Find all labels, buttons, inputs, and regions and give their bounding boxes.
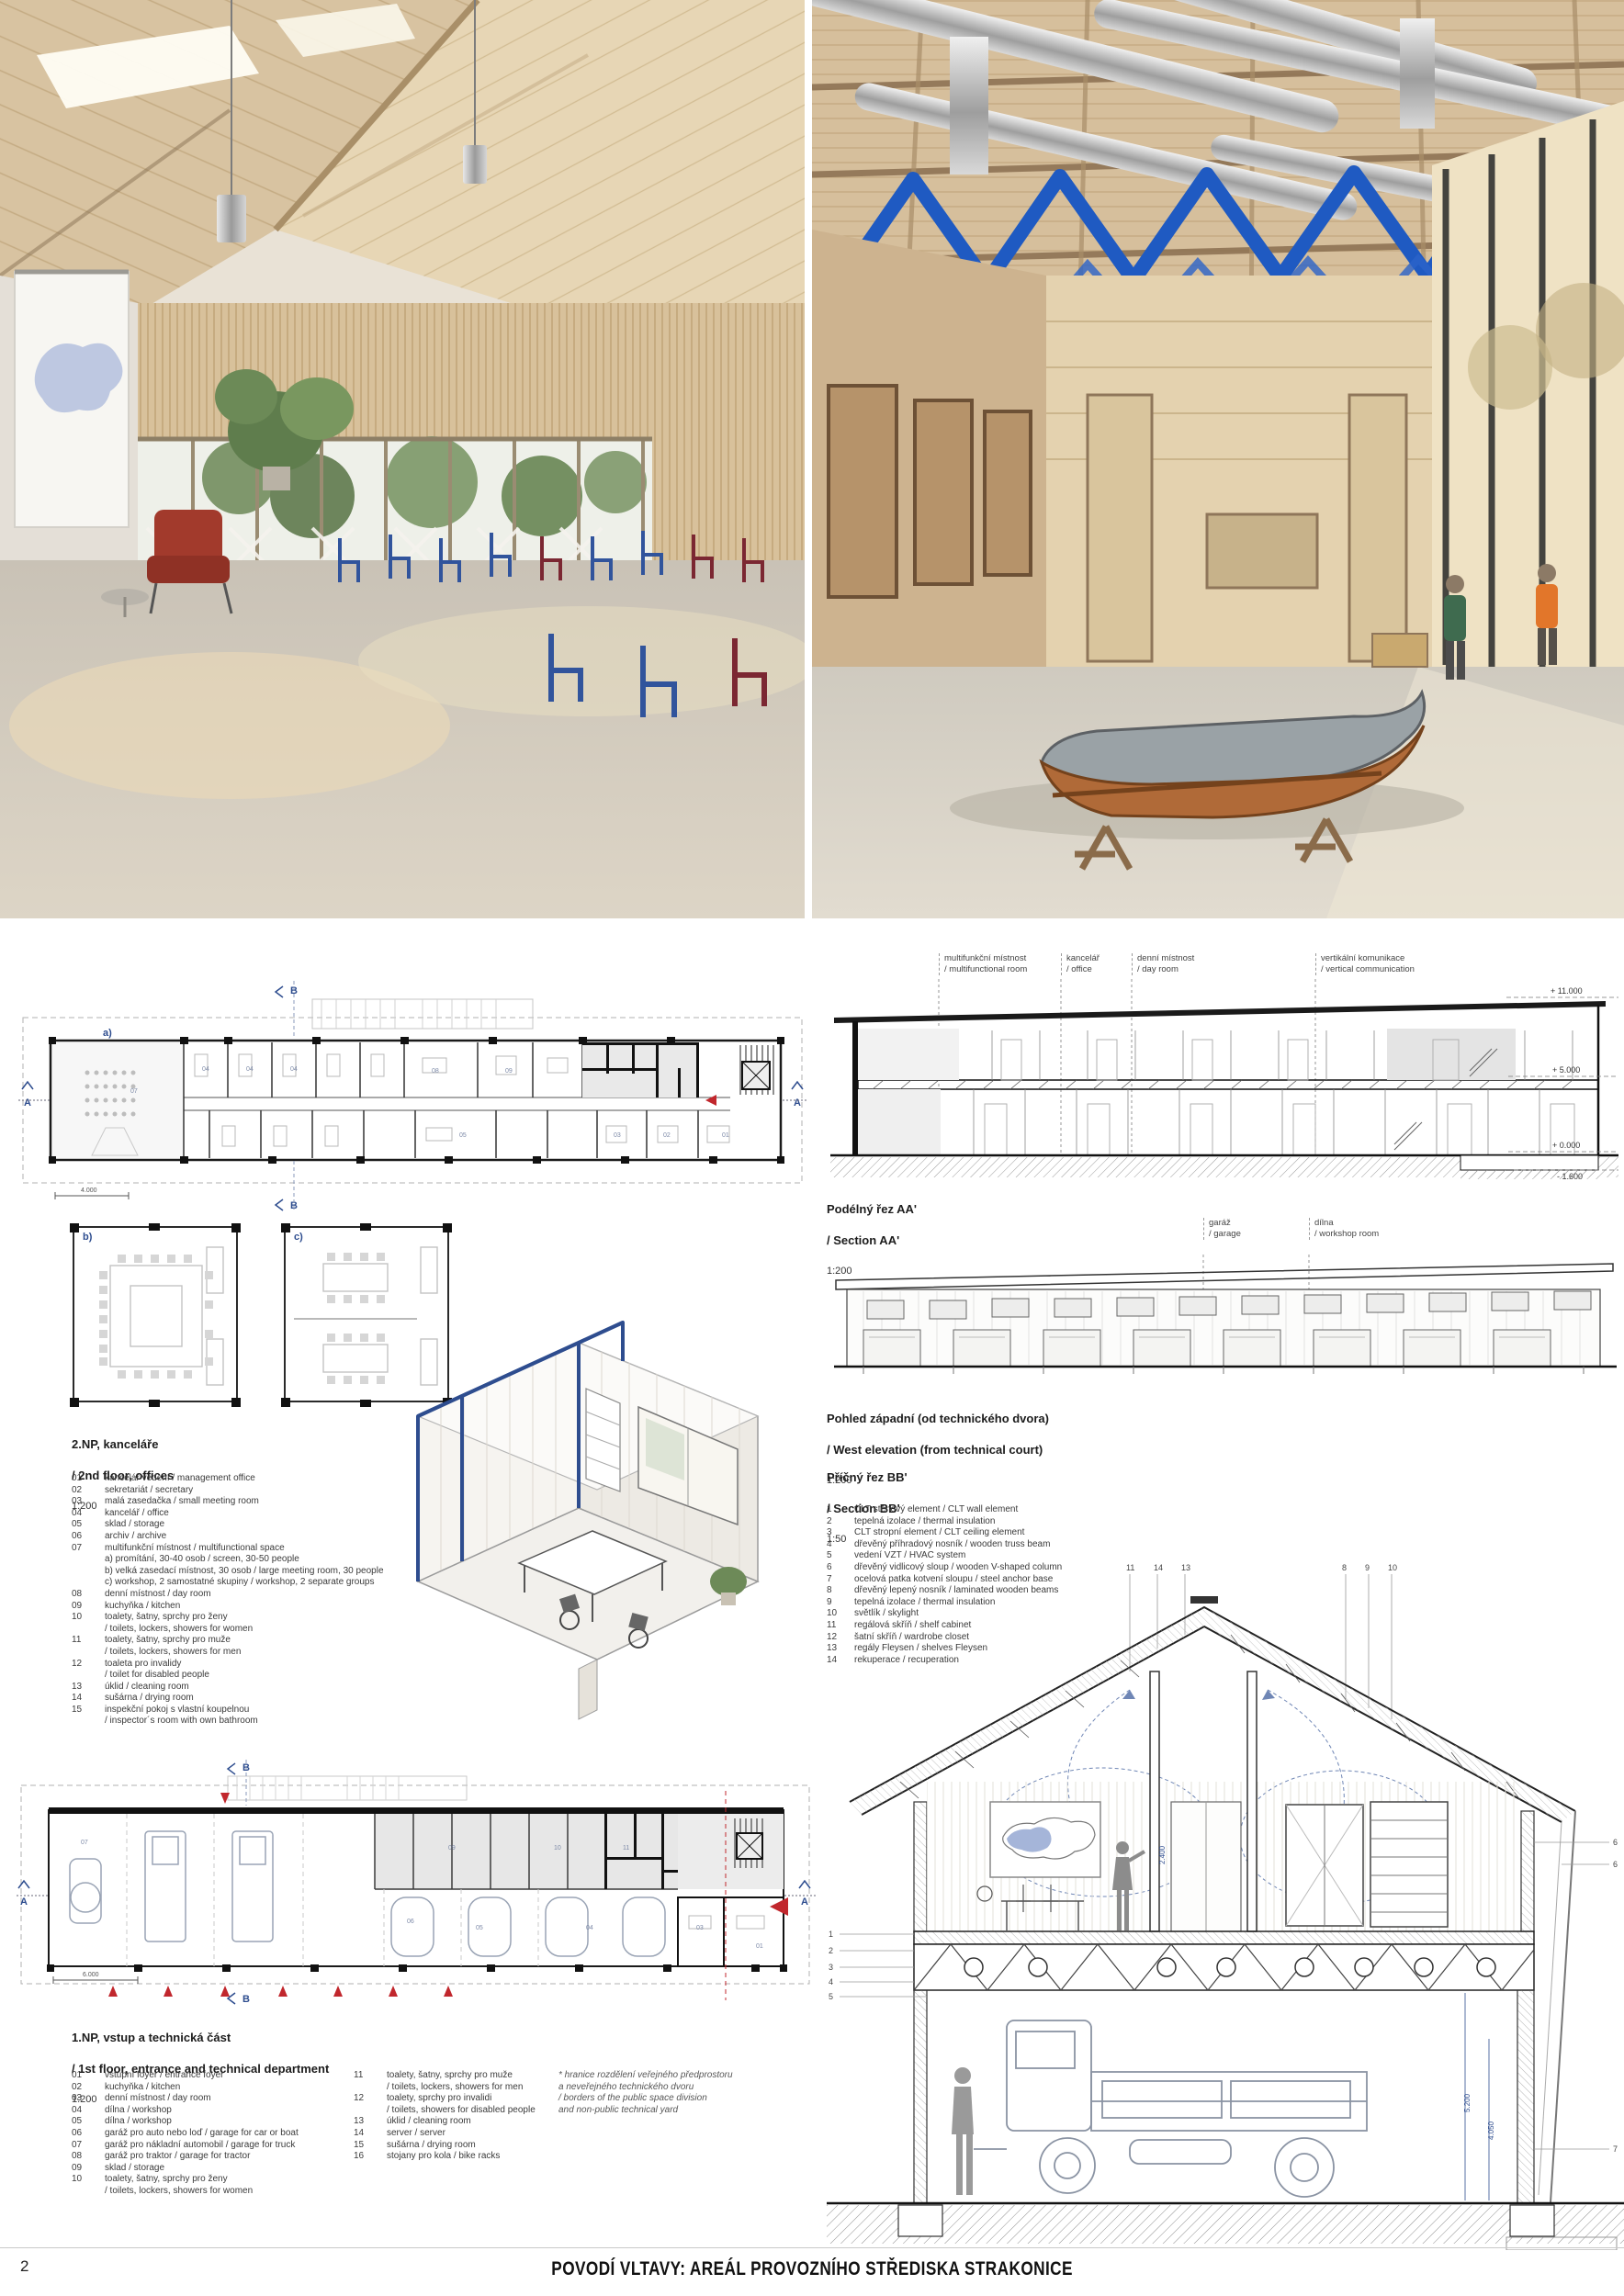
board-title: POVODÍ VLTAVY: AREÁL PROVOZNÍHO STŘEDISK…: [0, 2258, 1624, 2280]
legend-row: 06garáž pro auto nebo loď / garage for c…: [72, 2128, 347, 2140]
svg-text:1: 1: [829, 1930, 833, 1939]
svg-text:03: 03: [614, 1132, 621, 1139]
svg-text:4.000: 4.000: [81, 1187, 97, 1194]
legend-row: 11toalety, šatny, sprchy pro muže: [354, 2070, 565, 2082]
legend-row: / toilet for disabled people: [72, 1670, 467, 1682]
svg-text:4.050: 4.050: [1487, 2121, 1495, 2140]
legend-row: 08garáž pro traktor / garage for tractor: [72, 2151, 347, 2163]
svg-text:6: 6: [1613, 1838, 1618, 1847]
note-line: and non-public technical yard: [558, 2105, 761, 2117]
svg-text:05: 05: [459, 1132, 467, 1139]
legend-row: / toilets, showers for disabled people: [354, 2105, 565, 2117]
svg-text:09: 09: [505, 1068, 513, 1075]
svg-text:7: 7: [1613, 2144, 1618, 2154]
legend-row: 10toalety, šatny, sprchy pro ženy: [72, 2174, 347, 2186]
svg-text:11: 11: [623, 1845, 629, 1851]
svg-text:A: A: [24, 1097, 31, 1109]
legend-row: / toilets, lockers, showers for women: [72, 1624, 467, 1636]
legend-row: / toilets, lockers, showers for men: [354, 2082, 565, 2094]
legend-row: 05sklad / storage: [72, 1519, 467, 1531]
svg-text:+ 11.000: + 11.000: [1551, 986, 1583, 996]
footer-divider: [0, 2247, 1624, 2248]
legend-row: 06archiv / archive: [72, 1531, 467, 1543]
svg-text:A: A: [794, 1097, 801, 1109]
legend-row: 12toalety, sprchy pro invalidi: [354, 2093, 565, 2105]
svg-text:3: 3: [829, 1963, 833, 1972]
legend-row: / toilets, lockers, showers for men: [72, 1647, 467, 1659]
svg-text:09: 09: [448, 1845, 456, 1851]
legend-row: 1CLT stěnový element / CLT wall element: [827, 1504, 1194, 1516]
svg-text:5.200: 5.200: [1463, 2093, 1472, 2112]
door-row: [829, 386, 1031, 597]
svg-text:B: B: [242, 1994, 250, 2005]
legend-1np-col2: 11toalety, šatny, sprchy pro muže/ toile…: [354, 2070, 565, 2163]
svg-text:02: 02: [663, 1132, 671, 1139]
label-day-room: denní místnost/ day room: [1132, 953, 1194, 975]
legend-row: 15inspekční pokoj s vlastní koupelnou: [72, 1705, 467, 1716]
legend-2np: 01kancelář vedení / management office02s…: [72, 1473, 467, 1728]
svg-text:- 1.600: - 1.600: [1557, 1172, 1583, 1181]
svg-text:8: 8: [1342, 1563, 1347, 1572]
svg-text:06: 06: [407, 1919, 414, 1925]
svg-text:6.000: 6.000: [83, 1972, 99, 1978]
floor-plan-2np: a) B B A A 07 04 04 04 08 09 05: [18, 981, 808, 1212]
legend-row: 3CLT stropní element / CLT ceiling eleme…: [827, 1527, 1194, 1539]
svg-text:01: 01: [722, 1132, 729, 1139]
legend-row: 07garáž pro nákladní automobil / garage …: [72, 2140, 347, 2152]
svg-text:01: 01: [756, 1943, 763, 1950]
west-elevation-drawing: [827, 1253, 1624, 1390]
legend-row: 12toaleta pro invalidy: [72, 1659, 467, 1671]
svg-text:9: 9: [1365, 1563, 1370, 1572]
label-office: kancelář/ office: [1061, 953, 1100, 975]
svg-text:14: 14: [1154, 1563, 1163, 1572]
person-ground: [952, 2067, 974, 2195]
legend-row: 15sušárna / drying room: [354, 2140, 565, 2152]
svg-text:4: 4: [829, 1977, 833, 1986]
svg-text:11: 11: [1126, 1563, 1134, 1572]
floor-plan-1np: B B A A 07 09 06 10 11 05 04 03: [17, 1760, 818, 2006]
svg-text:A: A: [20, 1896, 28, 1908]
svg-text:07: 07: [130, 1088, 138, 1095]
svg-text:+ 0.000: + 0.000: [1552, 1141, 1580, 1150]
label-multifunctional-room: multifunkční místnost/ multifunctional r…: [939, 953, 1027, 975]
legend-row: 2tepelná izolace / thermal insulation: [827, 1516, 1194, 1528]
svg-text:5: 5: [829, 1992, 833, 2001]
svg-text:13: 13: [1181, 1563, 1190, 1572]
presentation-board: a) B B A A 07 04 04 04 08 09 05: [0, 0, 1624, 2296]
svg-text:04: 04: [586, 1925, 593, 1931]
legend-row: 10toalety, šatny, sprchy pro ženy: [72, 1612, 467, 1624]
svg-text:04: 04: [202, 1066, 209, 1073]
legend-row: / inspector´s room with own bathroom: [72, 1716, 467, 1728]
legend-row: 09kuchyňka / kitchen: [72, 1601, 467, 1613]
svg-text:08: 08: [432, 1068, 439, 1075]
photo-interior-meeting-room: [0, 0, 805, 918]
svg-text:03: 03: [696, 1925, 704, 1931]
section-bb-drawing: 11 14 13 8 9 10: [827, 1561, 1624, 2250]
note-line: / borders of the public space division: [558, 2093, 761, 2105]
legend-row: 08denní místnost / day room: [72, 1589, 467, 1601]
label-garage: garáž/ garage: [1203, 1218, 1241, 1240]
legend-row: b) velká zasedací místnost, 30 osob / la…: [72, 1566, 467, 1578]
legend-row: 4dřevěný příhradový nosník / wooden trus…: [827, 1539, 1194, 1551]
note-line: a neveřejného technického dvoru: [558, 2082, 761, 2094]
svg-text:05: 05: [476, 1925, 483, 1931]
svg-text:10: 10: [554, 1845, 561, 1851]
svg-text:6: 6: [1613, 1860, 1618, 1869]
legend-row: 09sklad / storage: [72, 2163, 347, 2175]
legend-row: 13úklid / cleaning room: [354, 2116, 565, 2128]
section-aa-drawing: + 11.000 + 5.000 + 0.000 - 1.600: [827, 975, 1624, 1185]
legend-row: 13úklid / cleaning room: [72, 1682, 467, 1694]
note-line: * hranice rozdělení veřejného předprosto…: [558, 2070, 761, 2082]
czech-map-picture: [990, 1802, 1100, 1877]
legend-row: 16stojany pro kola / bike racks: [354, 2151, 565, 2163]
legend-row: 04dílna / workshop: [72, 2105, 347, 2117]
boundary-note: * hranice rozdělení veřejného předprosto…: [558, 2070, 761, 2116]
label-workshop: dílna/ workshop room: [1309, 1218, 1379, 1240]
svg-text:+ 5.000: + 5.000: [1552, 1065, 1580, 1075]
legend-row: 03denní místnost / day room: [72, 2093, 347, 2105]
legend-row: 05dílna / workshop: [72, 2116, 347, 2128]
legend-row: 14sušárna / drying room: [72, 1693, 467, 1705]
legend-row: 11toalety, šatny, sprchy pro muže: [72, 1635, 467, 1647]
svg-text:2.400: 2.400: [1158, 1845, 1167, 1864]
svg-text:2: 2: [829, 1946, 833, 1955]
svg-text:b): b): [83, 1232, 93, 1243]
svg-text:a): a): [103, 1028, 112, 1039]
svg-text:A: A: [801, 1896, 808, 1908]
legend-row: 02sekretariát / secretary: [72, 1485, 467, 1497]
photo-interior-workshop-hall: [812, 0, 1624, 918]
svg-text:07: 07: [81, 1840, 88, 1846]
legend-1np-col1: 01vstupní foyer / entrance foyer02kuchyň…: [72, 2070, 347, 2198]
legend-row: 01kancelář vedení / management office: [72, 1473, 467, 1485]
legend-row: c) workshop, 2 samostatné skupiny / work…: [72, 1577, 467, 1589]
legend-row: / toilets, lockers, showers for women: [72, 2186, 347, 2198]
legend-row: a) promítání, 30-40 osob / screen, 30-50…: [72, 1554, 467, 1566]
legend-row: 07multifunkční místnost / multifunctiona…: [72, 1543, 467, 1555]
svg-text:04: 04: [246, 1066, 254, 1073]
label-vertical-communication: vertikální komunikace/ vertical communic…: [1315, 953, 1415, 975]
legend-row: 03malá zasedačka / small meeting room: [72, 1496, 467, 1508]
legend-row: 04kancelář / office: [72, 1508, 467, 1520]
legend-row: 02kuchyňka / kitchen: [72, 2082, 347, 2094]
pallet-stack: [1207, 514, 1317, 588]
svg-text:10: 10: [1388, 1563, 1397, 1572]
legend-row: 14server / server: [354, 2128, 565, 2140]
svg-text:c): c): [294, 1232, 303, 1243]
legend-row: 01vstupní foyer / entrance foyer: [72, 2070, 347, 2082]
truck: [974, 2020, 1367, 2197]
svg-text:04: 04: [290, 1066, 298, 1073]
